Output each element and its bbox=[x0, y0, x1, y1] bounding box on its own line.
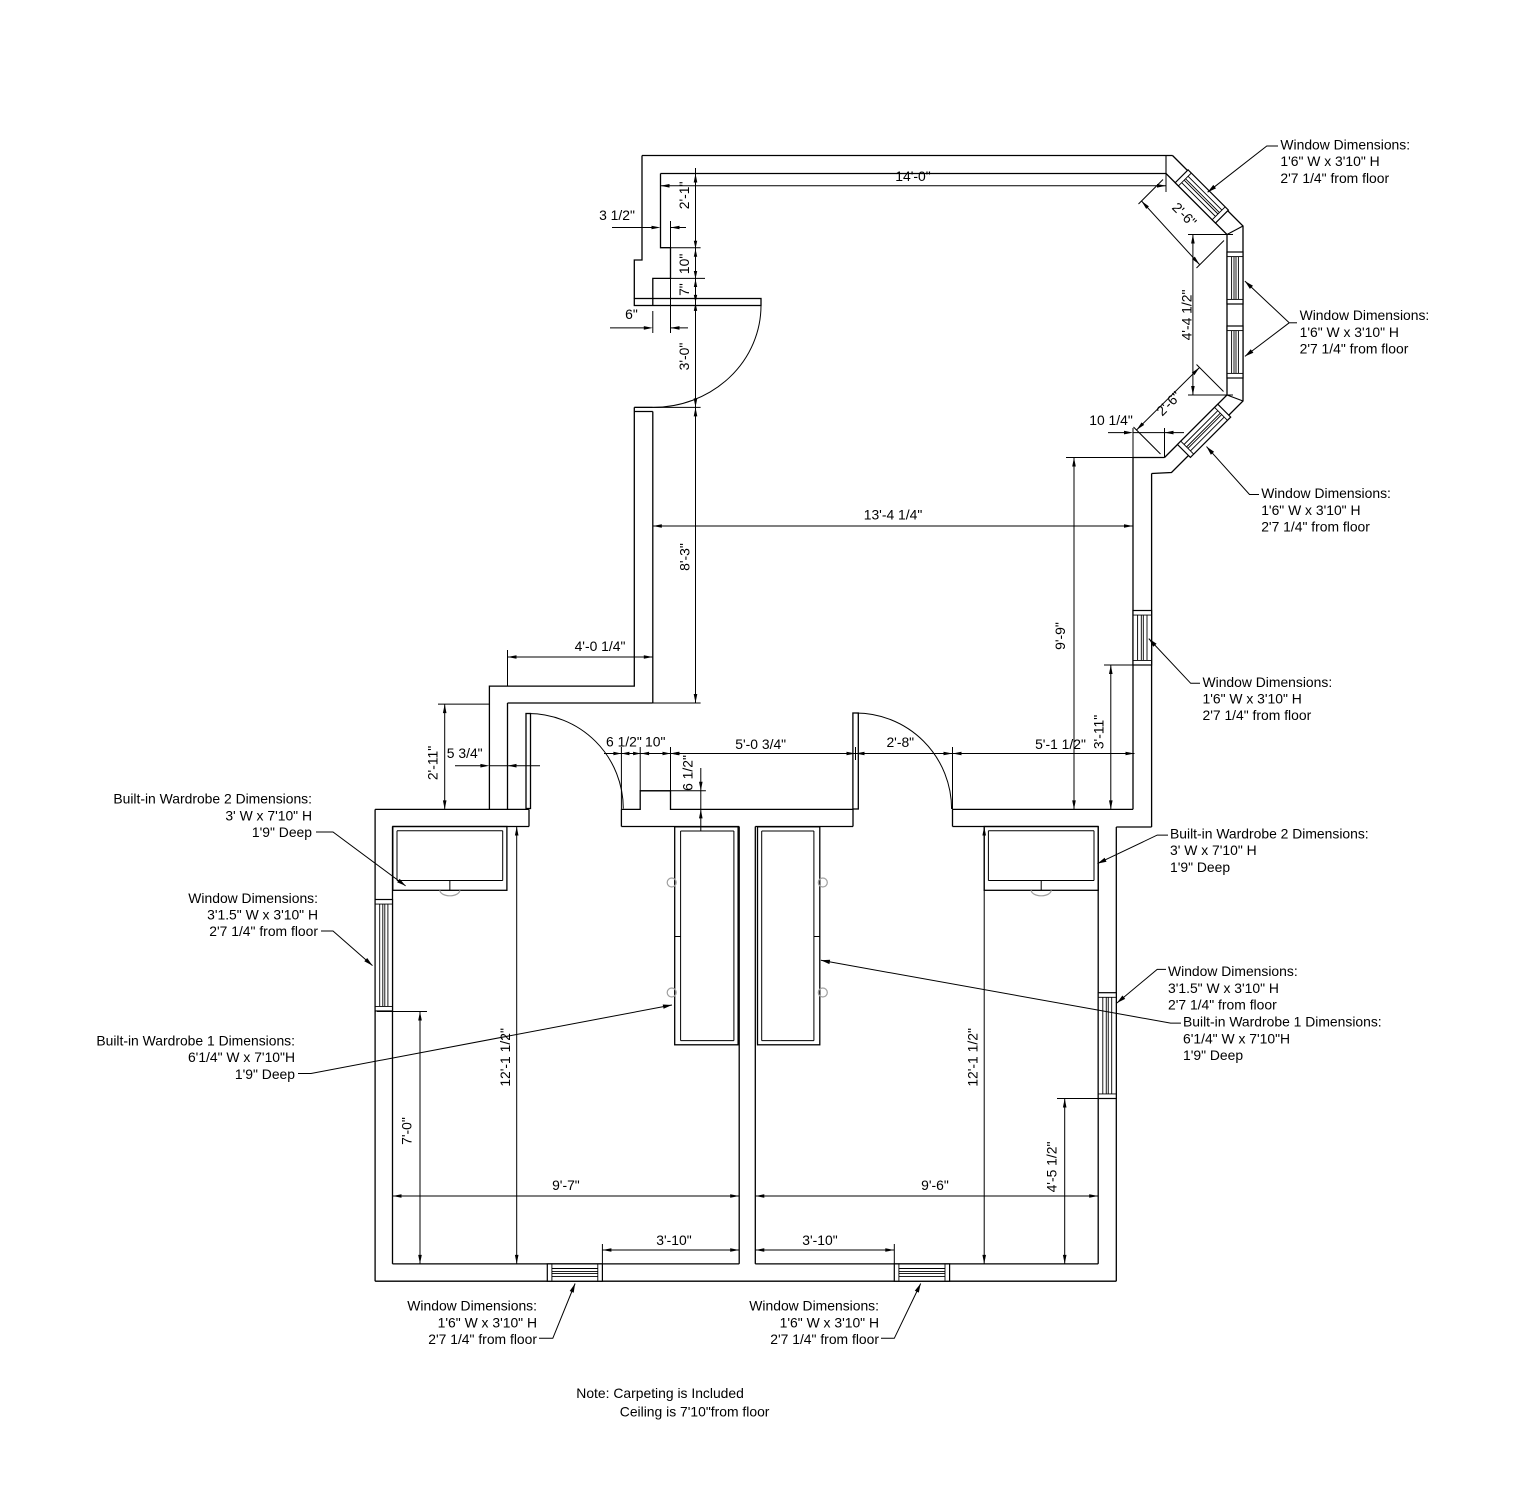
svg-text:Note: Carpeting is Included: Note: Carpeting is Included bbox=[576, 1385, 744, 1401]
svg-text:10": 10" bbox=[645, 734, 665, 750]
svg-text:5 3/4": 5 3/4" bbox=[447, 745, 483, 761]
svg-text:Window Dimensions:: Window Dimensions: bbox=[1168, 963, 1298, 979]
svg-text:2'7 1/4" from floor: 2'7 1/4" from floor bbox=[770, 1331, 879, 1347]
svg-text:4'-5 1/2": 4'-5 1/2" bbox=[1043, 1142, 1059, 1193]
svg-text:3'1.5" W x 3'10" H: 3'1.5" W x 3'10" H bbox=[207, 907, 318, 923]
svg-text:Built-in Wardrobe 1 Dimensions: Built-in Wardrobe 1 Dimensions: bbox=[96, 1033, 295, 1049]
svg-text:Window Dimensions:: Window Dimensions: bbox=[188, 890, 318, 906]
svg-text:8'-3": 8'-3" bbox=[677, 543, 693, 571]
svg-text:9'-6": 9'-6" bbox=[921, 1177, 949, 1193]
svg-text:1'9" Deep: 1'9" Deep bbox=[1170, 859, 1230, 875]
svg-text:Built-in Wardrobe 1 Dimensions: Built-in Wardrobe 1 Dimensions: bbox=[1183, 1014, 1382, 1030]
svg-text:3'-10": 3'-10" bbox=[656, 1232, 691, 1248]
svg-text:5'-1 1/2": 5'-1 1/2" bbox=[1035, 736, 1086, 752]
svg-text:2'7 1/4" from floor: 2'7 1/4" from floor bbox=[428, 1331, 537, 1347]
svg-text:6'1/4" W x 7'10"H: 6'1/4" W x 7'10"H bbox=[1183, 1030, 1290, 1046]
svg-text:3'-10": 3'-10" bbox=[802, 1232, 837, 1248]
svg-text:2'7 1/4" from floor: 2'7 1/4" from floor bbox=[1168, 997, 1277, 1013]
svg-text:7'-0": 7'-0" bbox=[398, 1117, 414, 1145]
svg-text:12'-1 1/2": 12'-1 1/2" bbox=[964, 1028, 980, 1087]
svg-text:1'6" W x 3'10" H: 1'6" W x 3'10" H bbox=[1261, 502, 1360, 518]
svg-text:3'-11": 3'-11" bbox=[1091, 715, 1107, 749]
svg-text:3 1/2": 3 1/2" bbox=[599, 207, 635, 223]
svg-text:1'6" W x 3'10" H: 1'6" W x 3'10" H bbox=[1203, 691, 1302, 707]
svg-text:14'-0": 14'-0" bbox=[895, 168, 930, 184]
svg-text:Window Dimensions:: Window Dimensions: bbox=[1203, 674, 1333, 690]
svg-text:Ceiling is 7'10"from floor: Ceiling is 7'10"from floor bbox=[620, 1403, 770, 1419]
svg-text:10": 10" bbox=[676, 254, 692, 274]
svg-text:2'7 1/4" from floor: 2'7 1/4" from floor bbox=[1300, 341, 1409, 357]
svg-text:9'-7": 9'-7" bbox=[552, 1177, 580, 1193]
svg-text:6 1/2": 6 1/2" bbox=[680, 755, 696, 791]
svg-text:2'-11": 2'-11" bbox=[425, 746, 441, 780]
svg-text:13'-4 1/4": 13'-4 1/4" bbox=[864, 507, 923, 523]
svg-text:1'9" Deep: 1'9" Deep bbox=[235, 1066, 295, 1082]
svg-text:Window Dimensions:: Window Dimensions: bbox=[1300, 307, 1430, 323]
svg-text:3'-0": 3'-0" bbox=[676, 343, 692, 371]
svg-text:Window Dimensions:: Window Dimensions: bbox=[407, 1298, 537, 1314]
svg-text:3' W x 7'10" H: 3' W x 7'10" H bbox=[225, 807, 312, 823]
svg-text:1'9" Deep: 1'9" Deep bbox=[1183, 1047, 1243, 1063]
svg-text:1'6" W x 3'10" H: 1'6" W x 3'10" H bbox=[780, 1314, 879, 1330]
svg-text:6": 6" bbox=[625, 306, 638, 322]
svg-text:Window Dimensions:: Window Dimensions: bbox=[749, 1298, 879, 1314]
svg-text:2'-8": 2'-8" bbox=[886, 734, 914, 750]
svg-text:2'7 1/4" from floor: 2'7 1/4" from floor bbox=[1261, 519, 1370, 535]
svg-text:Built-in Wardrobe 2 Dimensions: Built-in Wardrobe 2 Dimensions: bbox=[1170, 826, 1369, 842]
svg-text:Built-in Wardrobe 2 Dimensions: Built-in Wardrobe 2 Dimensions: bbox=[113, 791, 312, 807]
svg-text:6 1/2": 6 1/2" bbox=[606, 734, 642, 750]
svg-text:3'1.5" W x 3'10" H: 3'1.5" W x 3'10" H bbox=[1168, 980, 1279, 996]
svg-text:2'7 1/4" from floor: 2'7 1/4" from floor bbox=[1280, 170, 1389, 186]
svg-text:2'7 1/4" from floor: 2'7 1/4" from floor bbox=[209, 923, 318, 939]
svg-text:2'-1": 2'-1" bbox=[676, 182, 692, 210]
svg-text:4'-0 1/4": 4'-0 1/4" bbox=[575, 638, 626, 654]
svg-text:1'9" Deep: 1'9" Deep bbox=[252, 824, 312, 840]
svg-text:Window Dimensions:: Window Dimensions: bbox=[1280, 136, 1410, 152]
svg-text:3' W x 7'10" H: 3' W x 7'10" H bbox=[1170, 842, 1257, 858]
svg-text:4'-4 1/2": 4'-4 1/2" bbox=[1179, 290, 1195, 341]
svg-text:1'6" W x 3'10" H: 1'6" W x 3'10" H bbox=[1300, 324, 1399, 340]
svg-text:10 1/4": 10 1/4" bbox=[1089, 412, 1133, 428]
svg-text:2'7 1/4" from floor: 2'7 1/4" from floor bbox=[1203, 707, 1312, 723]
svg-text:5'-0 3/4": 5'-0 3/4" bbox=[735, 736, 786, 752]
svg-text:6'1/4" W x 7'10"H: 6'1/4" W x 7'10"H bbox=[188, 1049, 295, 1065]
svg-text:Window Dimensions:: Window Dimensions: bbox=[1261, 485, 1391, 501]
svg-text:9'-9": 9'-9" bbox=[1052, 622, 1068, 650]
svg-text:7": 7" bbox=[676, 283, 692, 296]
svg-text:1'6" W x 3'10" H: 1'6" W x 3'10" H bbox=[1280, 153, 1379, 169]
svg-text:1'6" W x 3'10" H: 1'6" W x 3'10" H bbox=[438, 1314, 537, 1330]
